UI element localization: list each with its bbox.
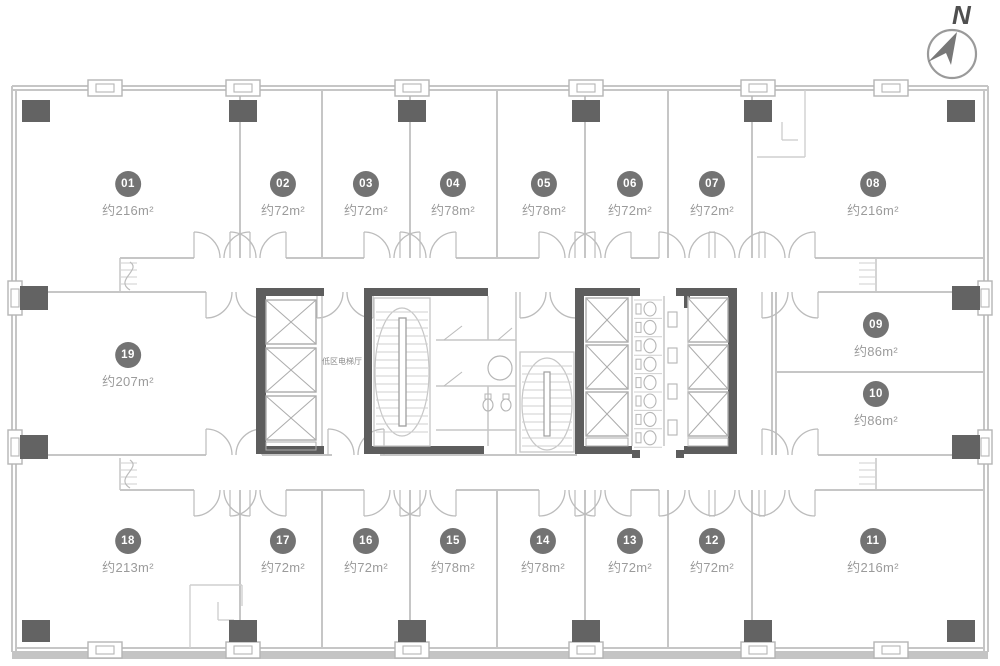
unit-number-badge: 11 (860, 528, 886, 554)
unit-07: 07约72m² (690, 171, 734, 219)
unit-number-badge: 10 (863, 381, 889, 407)
unit-area-label: 约72m² (690, 557, 734, 576)
unit-area-label: 约72m² (608, 200, 652, 219)
unit-area-label: 约72m² (344, 200, 388, 219)
unit-number-badge: 18 (115, 528, 141, 554)
unit-area-label: 约78m² (431, 557, 475, 576)
unit-number-badge: 13 (617, 528, 643, 554)
unit-number-badge: 16 (353, 528, 379, 554)
unit-02: 02约72m² (261, 171, 305, 219)
unit-area-label: 约78m² (522, 200, 566, 219)
unit-number-badge: 12 (699, 528, 725, 554)
unit-area-label: 约216m² (847, 557, 899, 576)
unit-01: 01约216m² (102, 171, 154, 219)
unit-16: 16约72m² (344, 528, 388, 576)
unit-04: 04约78m² (431, 171, 475, 219)
unit-09: 09约86m² (854, 312, 898, 360)
unit-17: 17约72m² (261, 528, 305, 576)
compass-icon (918, 0, 998, 84)
unit-area-label: 约72m² (608, 557, 652, 576)
unit-number-badge: 08 (860, 171, 886, 197)
unit-18: 18约213m² (102, 528, 154, 576)
unit-area-label: 约72m² (261, 557, 305, 576)
elevator-hall-label: 低区电梯厅 (322, 356, 362, 367)
unit-number-badge: 05 (531, 171, 557, 197)
unit-area-label: 约213m² (102, 557, 154, 576)
unit-05: 05约78m² (522, 171, 566, 219)
unit-10: 10约86m² (854, 381, 898, 429)
unit-number-badge: 07 (699, 171, 725, 197)
unit-06: 06约72m² (608, 171, 652, 219)
unit-number-badge: 04 (440, 171, 466, 197)
unit-number-badge: 19 (115, 342, 141, 368)
unit-number-badge: 14 (530, 528, 556, 554)
unit-12: 12约72m² (690, 528, 734, 576)
unit-area-label: 约72m² (344, 557, 388, 576)
unit-13: 13约72m² (608, 528, 652, 576)
unit-area-label: 约207m² (102, 371, 154, 390)
unit-area-label: 约78m² (431, 200, 475, 219)
unit-19: 19约207m² (102, 342, 154, 390)
unit-11: 11约216m² (847, 528, 899, 576)
unit-area-label: 约72m² (690, 200, 734, 219)
unit-area-label: 约86m² (854, 341, 898, 360)
unit-14: 14约78m² (521, 528, 565, 576)
unit-area-label: 约216m² (102, 200, 154, 219)
floor-plan: 01约216m²02约72m²03约72m²04约78m²05约78m²06约7… (0, 0, 1000, 666)
unit-number-badge: 03 (353, 171, 379, 197)
unit-area-label: 约78m² (521, 557, 565, 576)
unit-area-label: 约72m² (261, 200, 305, 219)
unit-03: 03约72m² (344, 171, 388, 219)
compass: N (918, 0, 998, 84)
unit-area-label: 约86m² (854, 410, 898, 429)
unit-15: 15约78m² (431, 528, 475, 576)
unit-number-badge: 09 (863, 312, 889, 338)
unit-number-badge: 15 (440, 528, 466, 554)
unit-08: 08约216m² (847, 171, 899, 219)
unit-number-badge: 06 (617, 171, 643, 197)
unit-number-badge: 02 (270, 171, 296, 197)
unit-number-badge: 17 (270, 528, 296, 554)
unit-number-badge: 01 (115, 171, 141, 197)
unit-area-label: 约216m² (847, 200, 899, 219)
